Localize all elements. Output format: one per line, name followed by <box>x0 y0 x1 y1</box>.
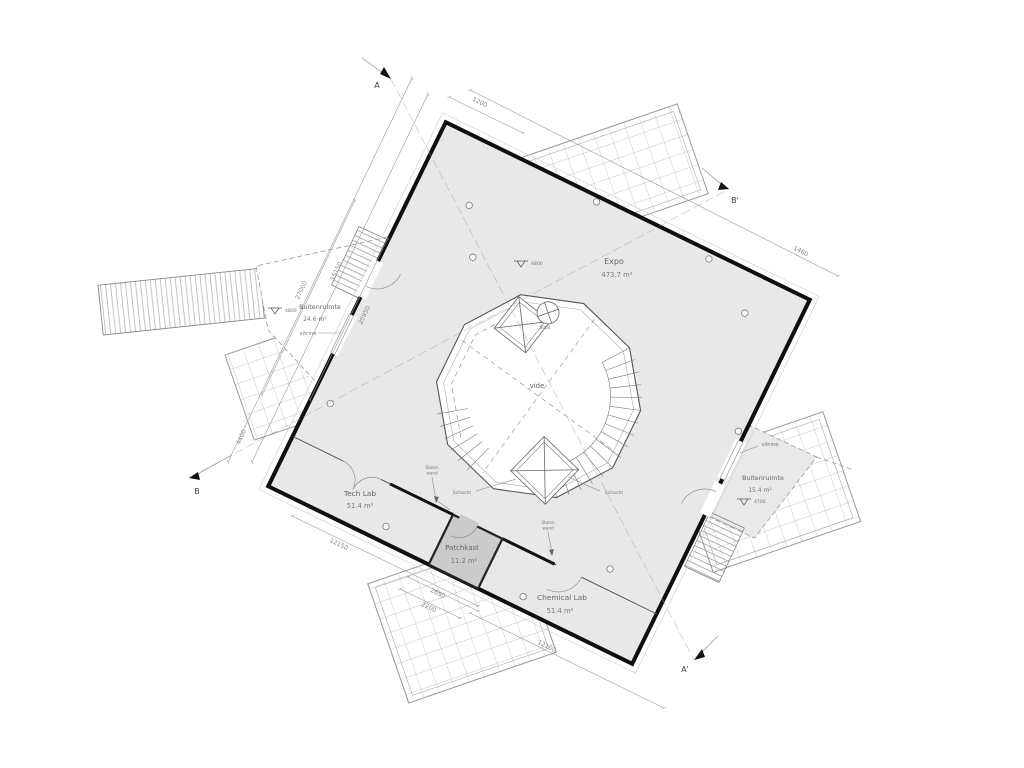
section-label-b: B <box>194 487 200 496</box>
room-area-tech-lab: 51.4 m² <box>347 502 374 510</box>
room-area-buitenruimte-right: 15.4 m² <box>748 487 772 494</box>
dim-bottom-left: 12150 <box>328 537 349 552</box>
spiral-stair-dim: 8000 <box>540 325 551 330</box>
stalen-wand-1-line1: Stalen <box>425 465 439 470</box>
level-value-right: 4700 <box>754 499 766 505</box>
stalen-wand-2-line2: wand <box>542 526 554 531</box>
dim-left-outer2: 4400 <box>235 429 248 446</box>
room-label-chemical-lab: Chemical Lab <box>537 593 587 602</box>
room-area-buitenruimte-left: 24.6 m² <box>303 316 327 323</box>
vitrine-left-label: vitrine <box>299 331 317 337</box>
vitrine-right-label: vitrine <box>761 442 779 448</box>
section-marker-a-prime: A' <box>681 636 718 674</box>
level-value-left: 4800 <box>285 308 297 314</box>
stalen-wand-1-line2: wand <box>426 471 438 476</box>
room-area-patchkast: 11.2 m² <box>451 557 478 565</box>
room-label-patchkast: Patchkast <box>445 544 479 552</box>
section-label-b-prime: B' <box>731 196 739 205</box>
section-marker-a: A <box>362 58 391 90</box>
dim-top-edge: 1460 <box>792 245 809 258</box>
room-area-chemical-lab: 51.4 m² <box>547 607 574 615</box>
level-value-expo: 4800 <box>531 261 543 267</box>
room-area-expo: 473.7 m² <box>602 271 633 279</box>
room-label-vide: vide <box>530 382 545 390</box>
floor-plan-drawing: A A' B B' 1200 1460 15150 4400 27000 209… <box>0 0 1024 768</box>
room-label-buitenruimte-left: Buitenruimte <box>299 303 341 311</box>
section-label-a-prime: A' <box>681 665 689 674</box>
room-label-expo: Expo <box>604 257 624 266</box>
section-marker-b: B <box>189 455 232 496</box>
room-label-tech-lab: Tech Lab <box>343 489 377 498</box>
boardwalk <box>98 268 264 335</box>
floor-plan-canvas: A A' B B' 1200 1460 15150 4400 27000 209… <box>0 0 1024 768</box>
stalen-wand-2-line1: Stalen <box>541 520 555 525</box>
section-label-a: A <box>374 81 380 90</box>
room-label-buitenruimte-right: Buitenruimte <box>742 474 784 482</box>
schacht-left-label: Schacht <box>453 490 472 496</box>
schacht-right-label: Schacht <box>605 490 624 496</box>
section-marker-b-prime: B' <box>702 168 739 205</box>
